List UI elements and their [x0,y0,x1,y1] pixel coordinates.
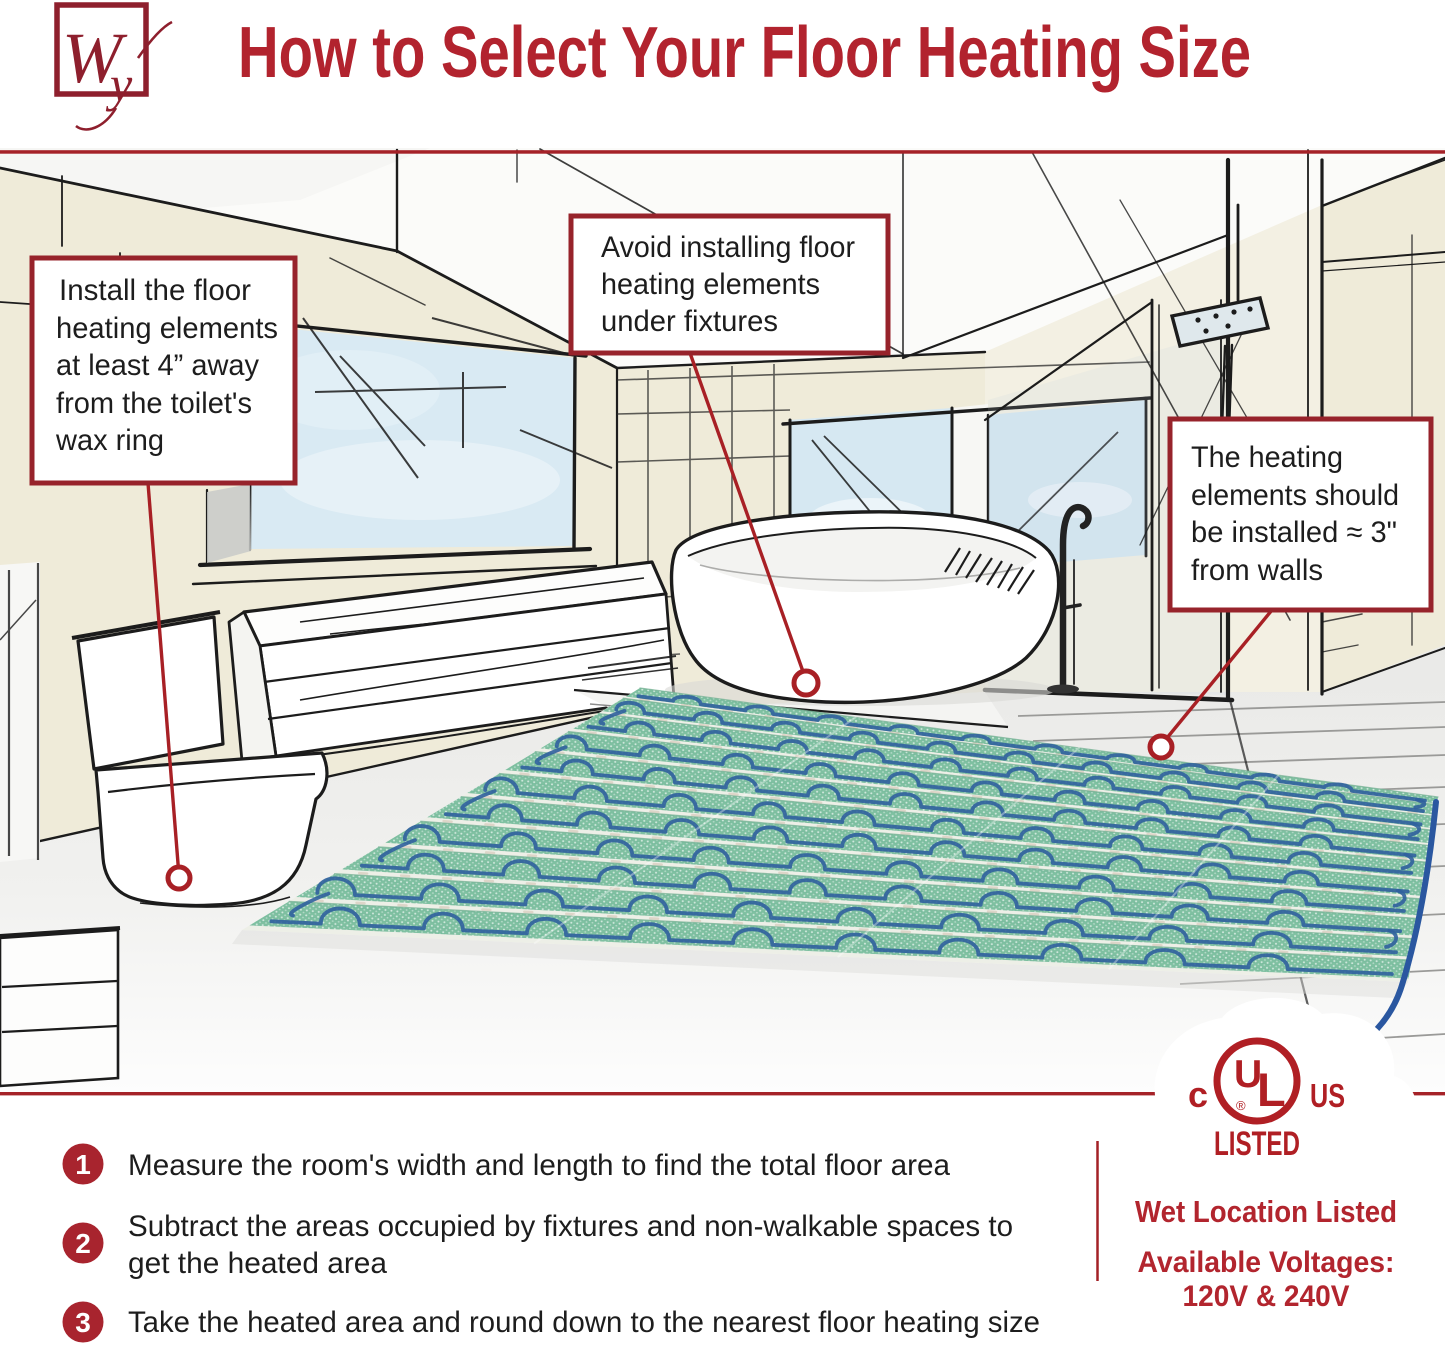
svg-text:elements should: elements should [1191,479,1399,512]
svg-text:3: 3 [75,1307,91,1338]
svg-text:L: L [1257,1063,1286,1116]
svg-text:wax ring: wax ring [55,424,164,457]
svg-text:at least 4” away: at least 4” away [56,349,259,382]
svg-text:How to Select Your Floor Heati: How to Select Your Floor Heating Size [238,13,1251,93]
svg-text:heating elements: heating elements [56,312,278,345]
svg-text:LISTED: LISTED [1214,1125,1300,1163]
svg-text:Avoid installing floor: Avoid installing floor [601,231,855,264]
svg-text:be installed ≈ 3": be installed ≈ 3" [1191,516,1397,549]
svg-text:®: ® [1236,1098,1246,1113]
svg-text:Available Voltages:: Available Voltages: [1138,1246,1395,1279]
svg-text:c: c [1188,1074,1208,1115]
svg-text:Install the floor: Install the floor [59,274,251,307]
svg-text:2: 2 [75,1228,91,1259]
svg-text:Wet Location Listed: Wet Location Listed [1135,1194,1397,1229]
svg-text:US: US [1310,1077,1345,1114]
svg-text:Take the heated area and round: Take the heated area and round down to t… [128,1306,1040,1339]
svg-text:1: 1 [75,1149,91,1180]
svg-text:under fixtures: under fixtures [601,305,778,338]
svg-text:Subtract the areas occupied by: Subtract the areas occupied by fixtures … [128,1210,1013,1243]
svg-text:from the toilet's: from the toilet's [56,387,252,420]
svg-text:y: y [105,56,133,112]
svg-text:from walls: from walls [1191,554,1323,587]
svg-text:Measure the room's width and l: Measure the room's width and length to f… [128,1149,950,1182]
svg-text:120V & 240V: 120V & 240V [1183,1280,1350,1313]
svg-text:get the heated area: get the heated area [128,1247,387,1280]
svg-text:heating elements: heating elements [601,268,820,301]
svg-text:The heating: The heating [1191,441,1343,474]
